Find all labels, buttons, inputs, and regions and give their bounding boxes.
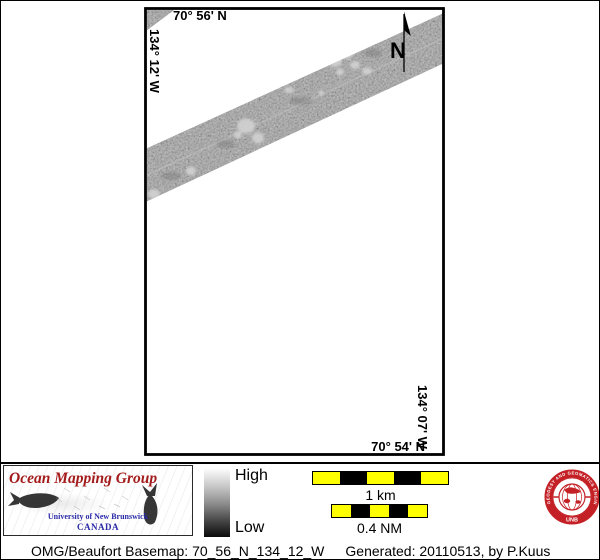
scalebar-nm-label: 0.4 NM [331,520,428,536]
scalebar-segment [408,505,427,517]
colorbar-high-label: High [235,467,268,485]
scalebar-segment [394,472,421,484]
scalebar-segment [421,472,448,484]
north-label: N [390,38,406,63]
credit-line: OMG/Beaufort Basemap: 70_56_N_134_12_WGe… [31,543,550,559]
depth-colorbar [204,469,230,537]
footer-divider [1,462,600,464]
credit-generated: Generated: 20110513, by P.Kuus [345,543,550,559]
scalebar-segment [367,472,394,484]
colorbar-low-label: Low [235,519,264,537]
scalebar-nm [331,504,428,518]
coord-label-left: 134° 12' W [147,29,162,94]
scalebar-km [312,471,449,485]
scalebar-segment [340,472,367,484]
credit-basemap: OMG/Beaufort Basemap: 70_56_N_134_12_W [31,543,324,559]
scalebar-segment [332,505,351,517]
coord-label-bottom: 70° 54' N [371,439,425,454]
map-panel: N 70° 56' N 134° 12' W 134° 07' W 70° 54… [1,1,600,463]
omg-logo: Ocean Mapping Group University of New Br… [3,465,193,536]
coord-label-top: 70° 56' N [173,8,227,23]
omg-institution: University of New Brunswick [4,512,192,521]
scalebar-segment [389,505,408,517]
seal-unb-label: UNB [566,518,578,524]
basemap-page: N 70° 56' N 134° 12' W 134° 07' W 70° 54… [0,0,600,560]
unb-seal: GEODESY AND GEOMATICS ENGINEERING UNB [543,468,600,526]
whale-left-icon [18,493,59,508]
scalebar-km-label: 1 km [312,487,449,503]
omg-country: CANADA [4,522,192,532]
scalebar-segment [370,505,389,517]
scalebar-segment [351,505,370,517]
scalebar-segment [313,472,340,484]
omg-title: Ocean Mapping Group [9,470,157,488]
